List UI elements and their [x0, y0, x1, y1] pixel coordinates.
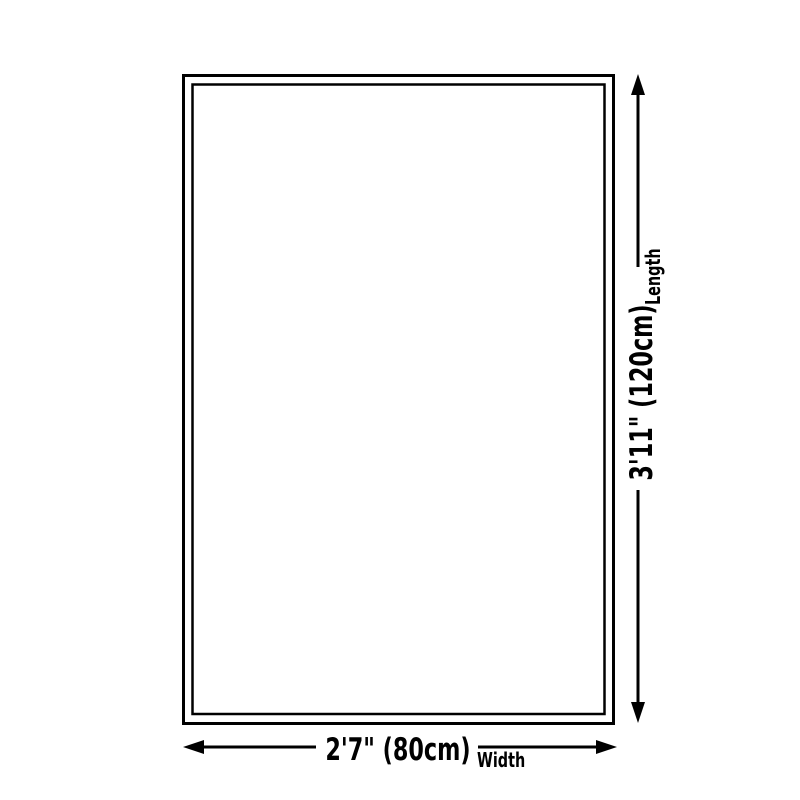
length-axis-label: Length: [643, 248, 666, 305]
dimension-diagram-svg: 3'11" (120cm) Length 2'7" (80cm) Width: [0, 0, 800, 800]
length-value: 3'11" (120cm): [624, 304, 660, 480]
width-axis-label: Width: [477, 750, 525, 773]
arrow-right-icon: [596, 740, 617, 754]
rug-size-diagram: 3'11" (120cm) Length 2'7" (80cm) Width: [0, 0, 800, 800]
arrow-up-icon: [631, 74, 645, 95]
rug-inner-border: [193, 85, 605, 715]
arrow-down-icon: [631, 702, 645, 723]
width-dimension: 2'7" (80cm) Width: [183, 732, 617, 772]
rug-outline: [184, 76, 614, 724]
rug-outer-border: [184, 76, 614, 724]
length-dimension: 3'11" (120cm) Length: [624, 74, 665, 723]
arrow-left-icon: [183, 740, 204, 754]
width-value: 2'7" (80cm): [325, 732, 470, 768]
